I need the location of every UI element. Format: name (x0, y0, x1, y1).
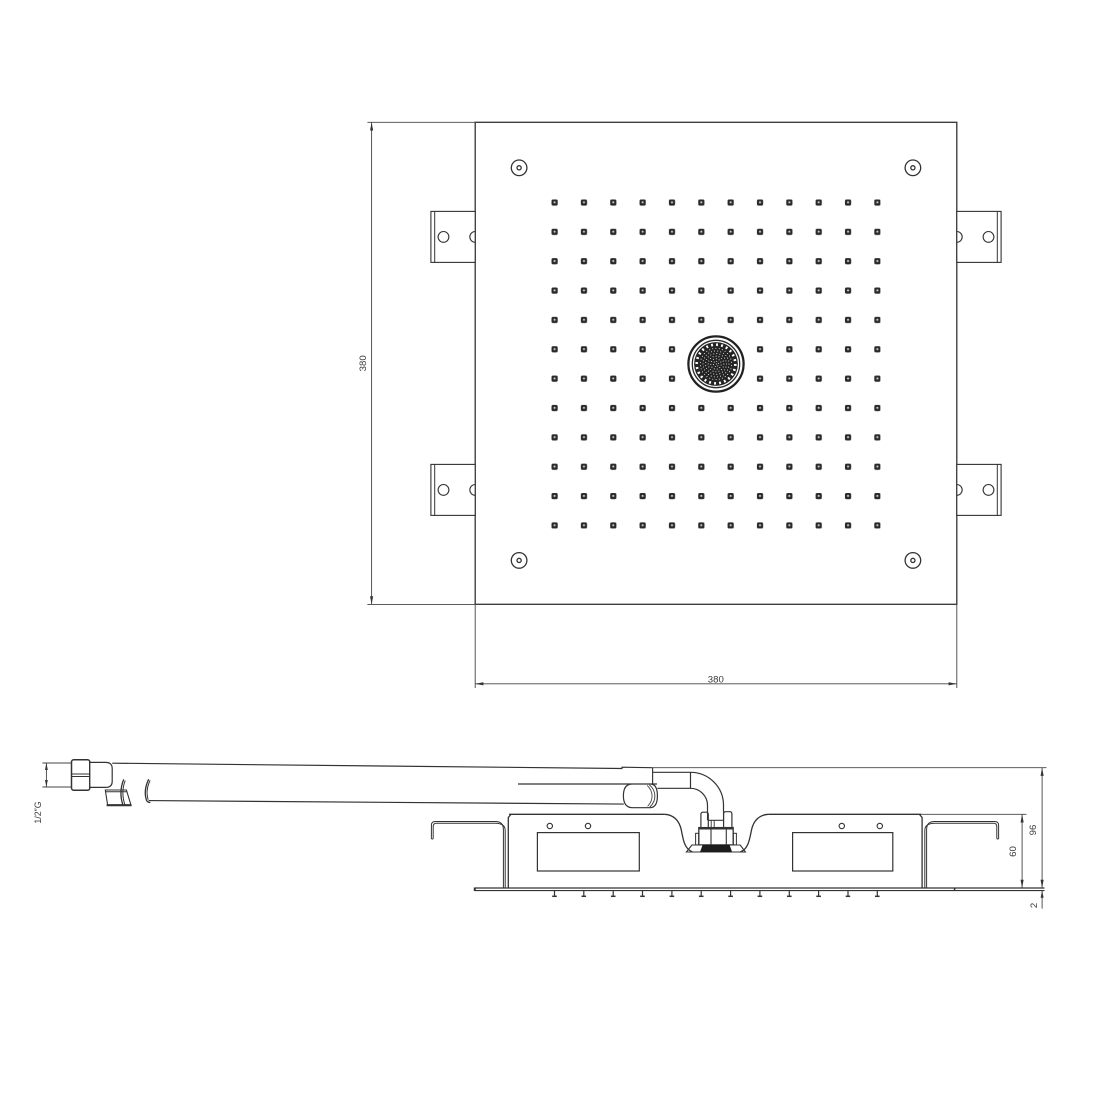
svg-text:2: 2 (1029, 903, 1040, 908)
svg-text:60: 60 (1008, 846, 1019, 857)
svg-text:96: 96 (1028, 825, 1039, 836)
svg-text:1/2″G: 1/2″G (33, 801, 43, 823)
svg-text:380: 380 (708, 674, 724, 685)
svg-text:380: 380 (358, 355, 369, 371)
